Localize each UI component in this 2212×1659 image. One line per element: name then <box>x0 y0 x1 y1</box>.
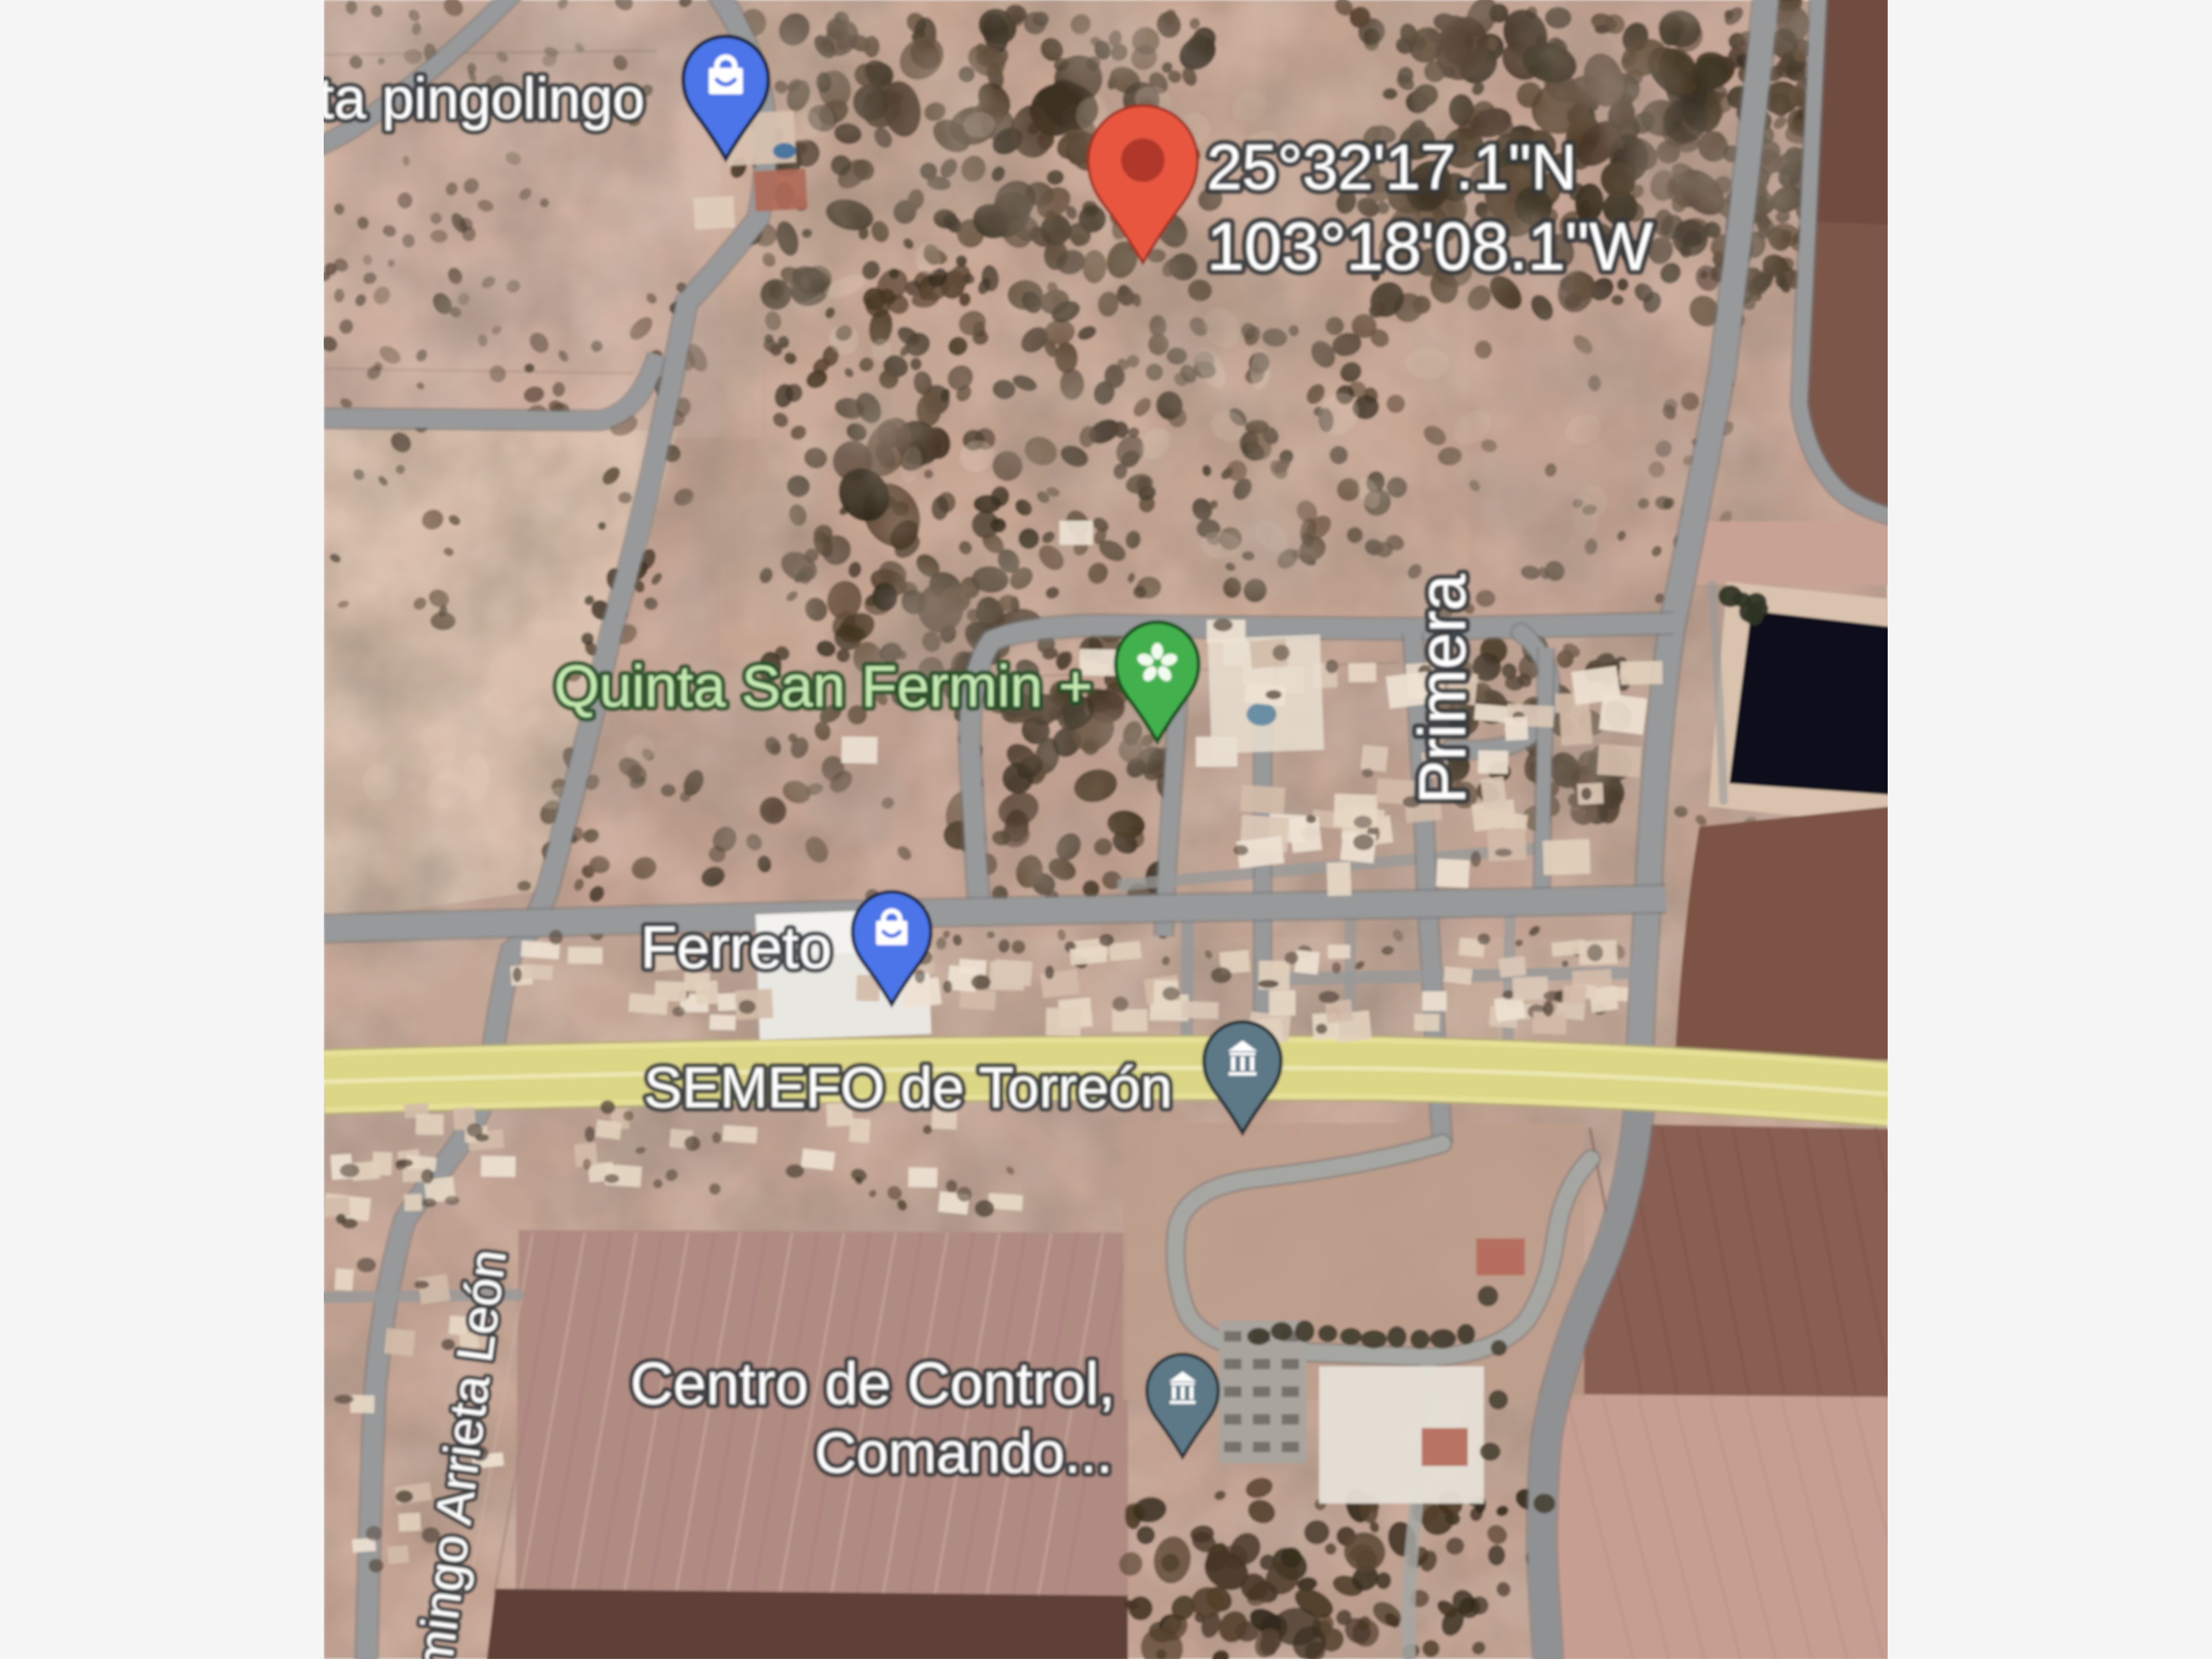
svg-text:ta pingolingo: ta pingolingo <box>318 66 645 131</box>
svg-text:Centro de Control,: Centro de Control, <box>630 1350 1115 1416</box>
svg-text:Ferreto: Ferreto <box>641 914 832 980</box>
svg-text:103°18'08.1"W: 103°18'08.1"W <box>1207 209 1653 284</box>
svg-text:SEMEFO de Torreón: SEMEFO de Torreón <box>644 1055 1172 1119</box>
svg-text:Primera: Primera <box>1406 574 1479 804</box>
svg-text:Quinta San Fermin +: Quinta San Fermin + <box>554 654 1093 719</box>
svg-text:Comando...: Comando... <box>815 1421 1113 1485</box>
svg-text:25°32'17.1"N: 25°32'17.1"N <box>1207 132 1577 203</box>
